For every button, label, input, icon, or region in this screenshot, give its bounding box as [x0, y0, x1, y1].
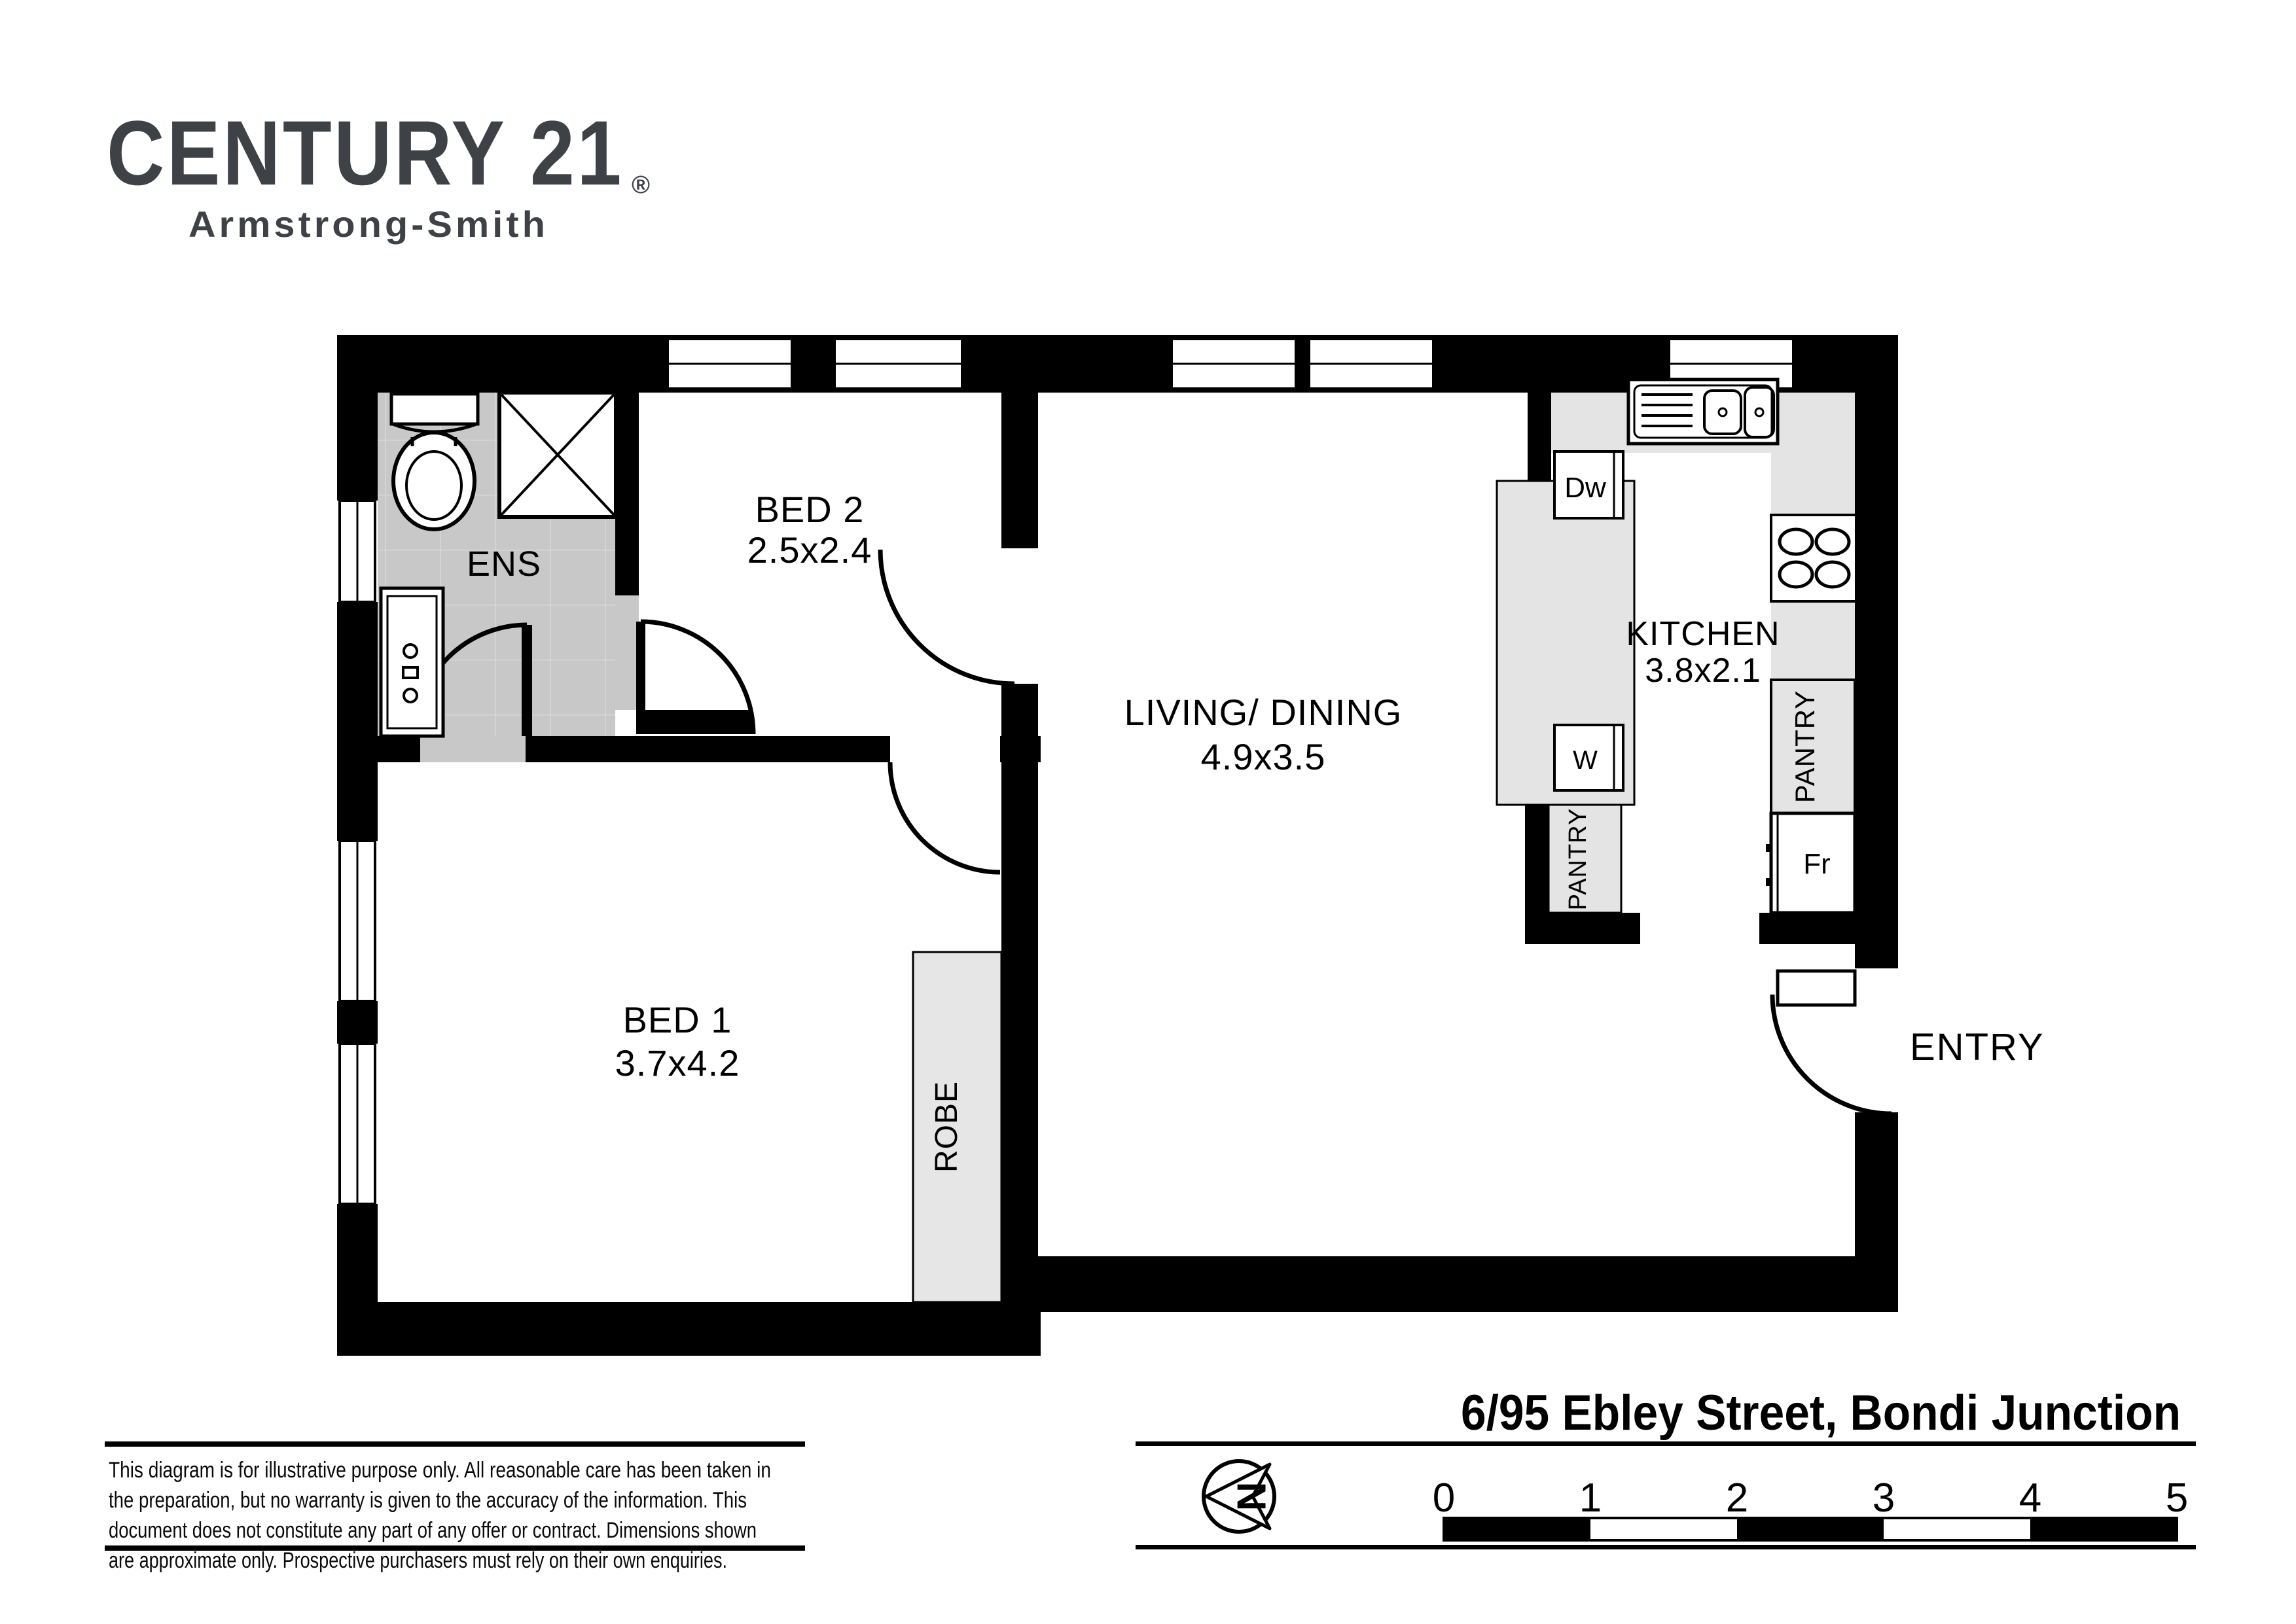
floorplan-page: CENTURY 21 ® Armstrong-Smith	[0, 0, 2296, 1624]
disclaimer-line: This diagram is for illustrative purpose…	[109, 1458, 771, 1483]
bed2-door-threshold	[615, 595, 639, 710]
scale-tick: 1	[1579, 1475, 1602, 1521]
fridge-label: Fr	[1803, 848, 1831, 880]
wall	[615, 393, 639, 595]
disclaimer-line: are approximate only. Prospective purcha…	[109, 1548, 727, 1573]
scale-tick: 2	[1726, 1475, 1748, 1521]
kitchen-label: KITCHEN	[1626, 615, 1780, 653]
north-arrow-icon: N	[1204, 1461, 1275, 1532]
wall	[1759, 913, 1855, 944]
vanity-icon	[381, 588, 443, 736]
property-address: 6/95 Ebley Street, Bondi Junction	[1461, 1385, 2181, 1441]
fridge-box: Fr	[1766, 813, 1855, 913]
ens-door-threshold	[420, 736, 526, 762]
wall	[337, 335, 378, 501]
rule-line	[1136, 1441, 2196, 1446]
scale-bar: 0 1 2 3 4 5	[1433, 1475, 2188, 1540]
wall	[1528, 393, 1551, 481]
double-sink-icon	[1628, 380, 1778, 444]
window	[668, 339, 792, 389]
scale-tick: 5	[2166, 1475, 2188, 1521]
wall	[1855, 335, 1898, 968]
kitchen-dims: 3.8x2.1	[1645, 652, 1761, 690]
toilet-icon	[391, 394, 478, 529]
bed1-dims: 3.7x4.2	[615, 1042, 740, 1084]
cooktop-icon	[1771, 515, 1856, 601]
pantry-wall-label: PANTRY	[1789, 690, 1820, 803]
washer-box: W	[1554, 725, 1623, 790]
window	[340, 841, 375, 1001]
window	[340, 1044, 375, 1204]
wall	[337, 1001, 378, 1044]
window	[1172, 339, 1296, 389]
bed1-label: BED 1	[623, 999, 732, 1040]
robe-label: ROBE	[929, 1081, 964, 1173]
rule-line	[1136, 1545, 2196, 1549]
dishwasher-box: Dw	[1554, 451, 1623, 518]
wall	[337, 736, 420, 762]
brand-name: CENTURY 21	[107, 101, 624, 204]
scale-tick: 0	[1433, 1475, 1455, 1521]
bed2-dims: 2.5x2.4	[747, 529, 872, 571]
entry-door-leaf	[1778, 971, 1855, 1005]
scale-tick: 4	[2019, 1475, 2041, 1521]
living-label: LIVING/ DINING	[1124, 692, 1403, 733]
wall	[1525, 913, 1640, 944]
pantry-island-label: PANTRY	[1564, 808, 1592, 911]
wall	[1001, 393, 1038, 548]
scale-tick: 3	[1873, 1475, 1895, 1521]
wall	[337, 602, 378, 841]
disclaimer-line: document does not constitute any part of…	[109, 1518, 757, 1543]
ens-label: ENS	[467, 544, 541, 584]
scale-bar-segment	[1444, 1518, 1590, 1540]
registered-mark: ®	[632, 171, 650, 199]
window	[834, 339, 962, 389]
disclaimer-line: the preparation, but no warranty is give…	[109, 1488, 747, 1513]
door-leaf	[636, 622, 645, 734]
door-arc	[1772, 995, 1892, 1114]
disclaimer-block: This diagram is for illustrative purpose…	[109, 1458, 771, 1573]
washer-label: W	[1573, 746, 1598, 775]
wall	[337, 1204, 378, 1356]
rule-line	[105, 1441, 805, 1447]
scale-bar-segment	[1737, 1518, 1884, 1540]
door-arc	[890, 762, 1000, 872]
bed2-label: BED 2	[755, 489, 865, 530]
living-dims: 4.9x3.5	[1201, 736, 1326, 777]
window	[340, 501, 375, 602]
north-letter: N	[1230, 1482, 1275, 1511]
wall	[526, 736, 890, 762]
dishwasher-label: Dw	[1564, 472, 1606, 504]
wall	[1001, 684, 1038, 1256]
floors	[378, 393, 1855, 1302]
wall	[639, 710, 753, 734]
wall	[337, 1302, 1041, 1356]
door-arc	[880, 550, 1014, 684]
wall	[1525, 805, 1549, 913]
entry-label: ENTRY	[1910, 1026, 2045, 1068]
floorplan-canvas: CENTURY 21 ® Armstrong-Smith	[0, 0, 2296, 1624]
window	[1309, 339, 1433, 389]
brand-subname: Armstrong-Smith	[188, 203, 548, 245]
brand-logo: CENTURY 21 ® Armstrong-Smith	[107, 101, 650, 245]
shower-icon	[499, 393, 616, 517]
door-leaf	[522, 625, 532, 736]
scale-bar-segment	[2030, 1518, 2177, 1540]
wall	[1001, 1256, 1898, 1312]
